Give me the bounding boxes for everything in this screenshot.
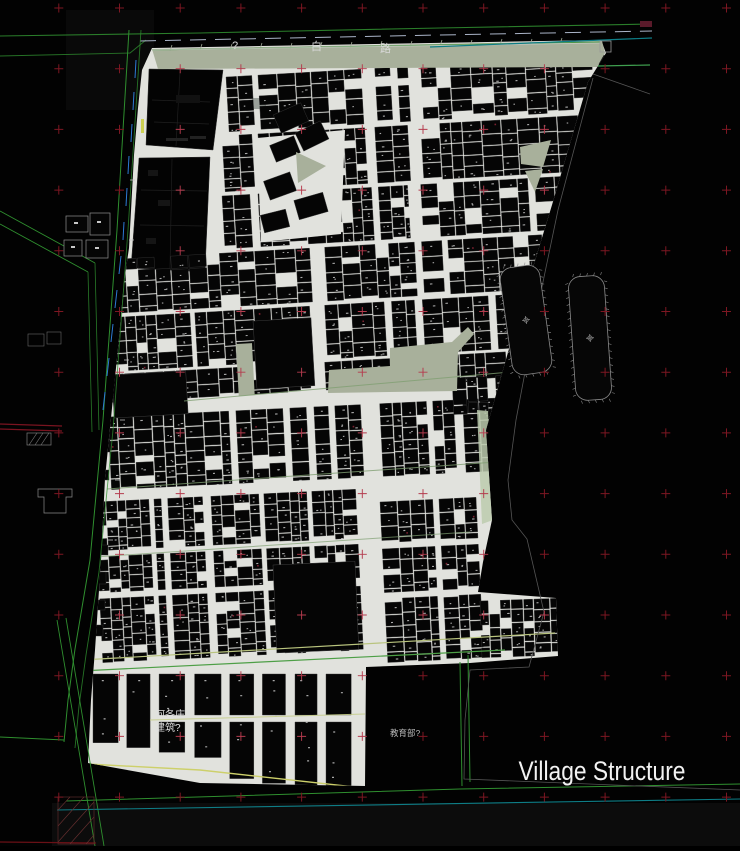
svg-text:建筑?: 建筑?	[155, 721, 181, 734]
svg-text:教育部?: 教育部?	[390, 728, 421, 738]
svg-text:何各庄: 何各庄	[155, 708, 185, 721]
svg-text:路: 路	[380, 42, 391, 55]
svg-text:Village Structure: Village Structure	[519, 756, 686, 786]
svg-text:?: ?	[232, 40, 238, 52]
svg-text:白: 白	[311, 39, 322, 53]
